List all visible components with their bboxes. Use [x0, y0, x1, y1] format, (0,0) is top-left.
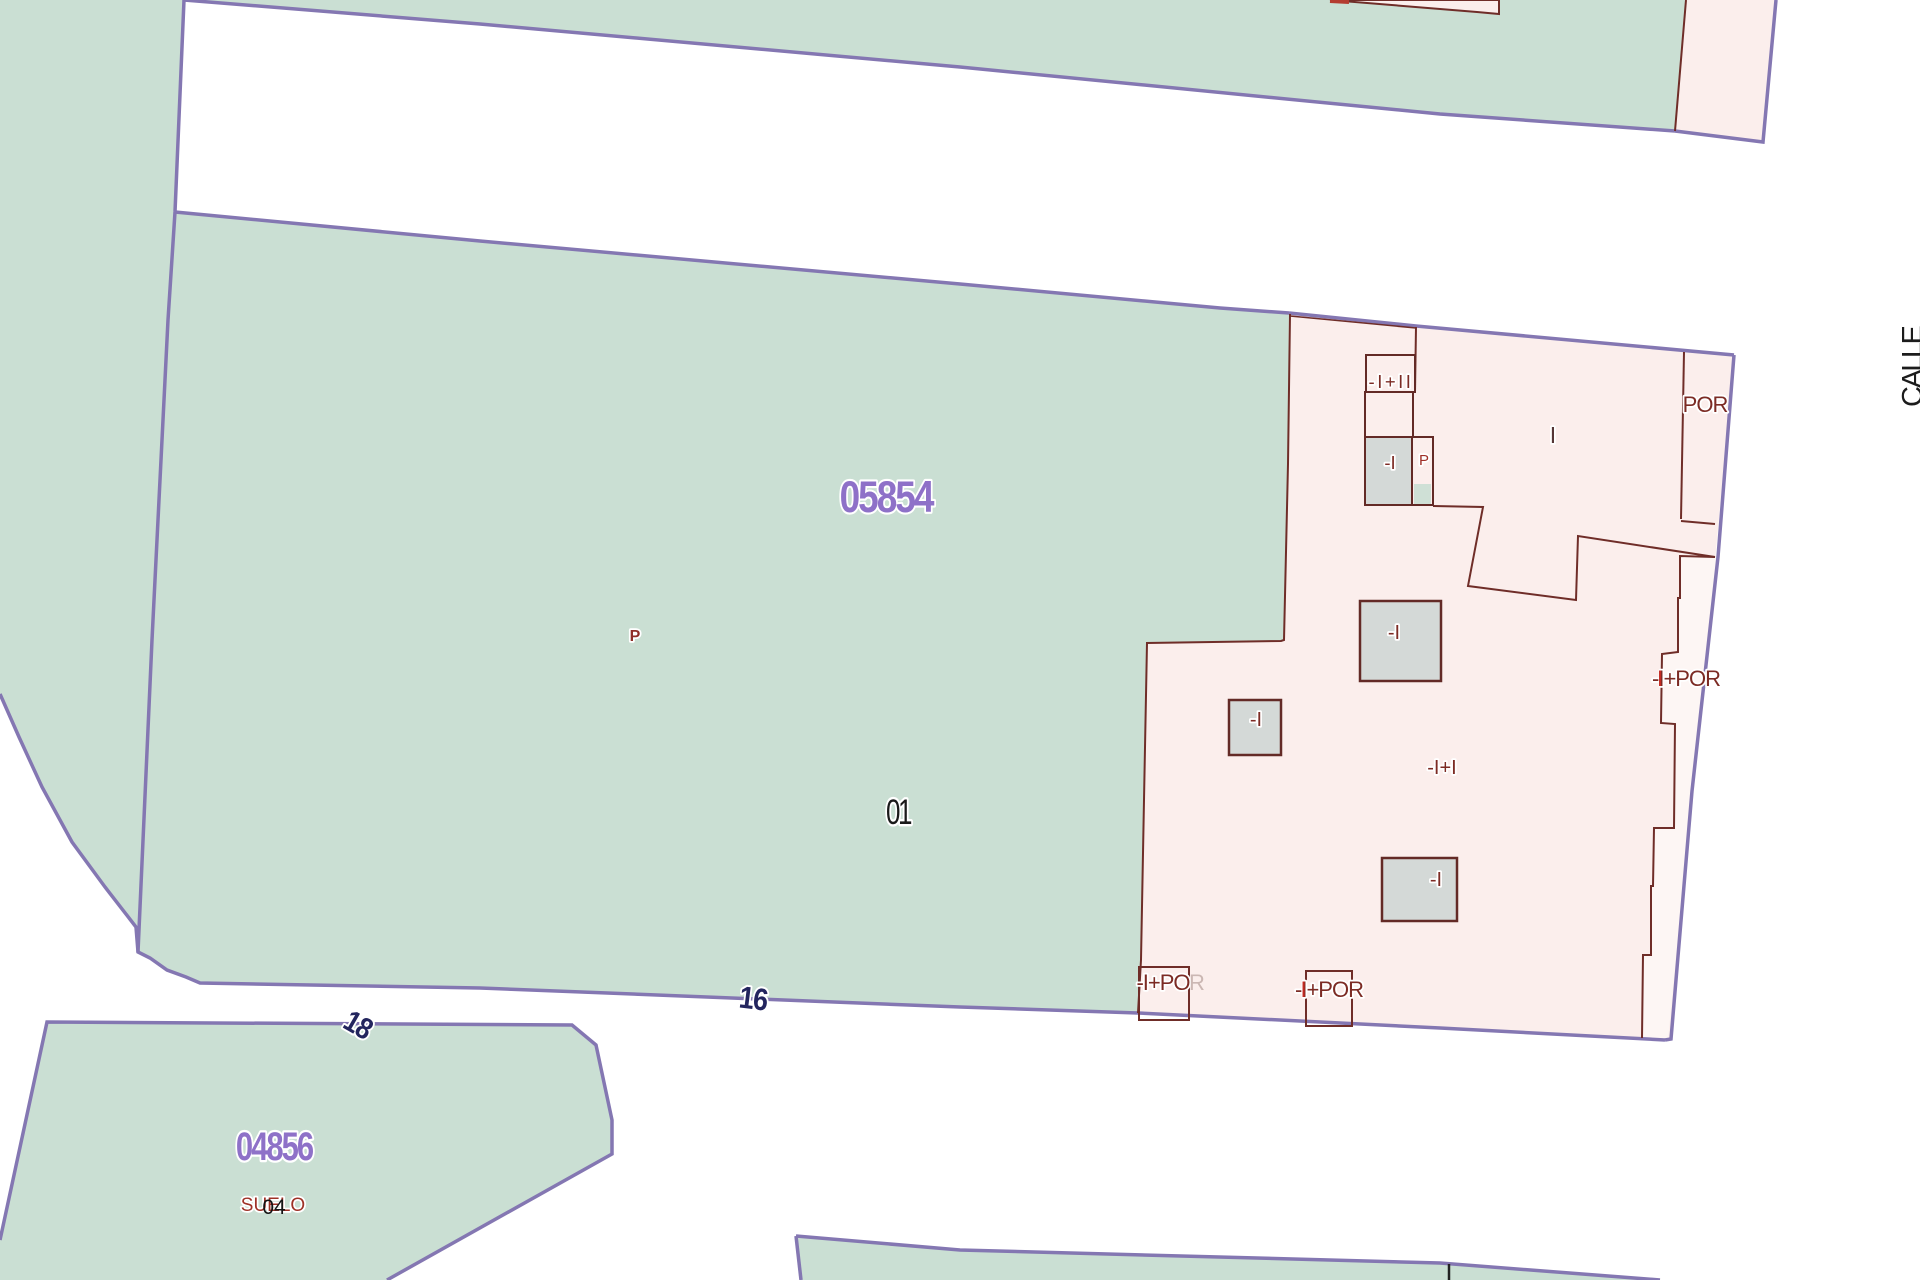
svg-text:05854: 05854 [840, 472, 935, 522]
svg-text:-I: -I [1250, 709, 1262, 731]
svg-text:01: 01 [886, 792, 911, 832]
svg-text:P: P [1419, 452, 1429, 469]
svg-text:I: I [1657, 666, 1663, 691]
svg-text:-I: -I [1430, 869, 1442, 891]
svg-text:I: I [1300, 977, 1306, 1002]
svg-text:I: I [1550, 422, 1556, 448]
svg-text:P: P [630, 628, 641, 645]
svg-text:16: 16 [737, 981, 770, 1018]
svg-text:-I+I: -I+I [1427, 757, 1456, 779]
svg-text:CALLE: CALLE [1897, 325, 1920, 407]
svg-text:-I+II: -I+II [1369, 371, 1414, 392]
svg-text:-I+PO: -I+PO [1136, 970, 1190, 995]
svg-text:04856: 04856 [236, 1123, 313, 1169]
svg-text:R: R [1189, 970, 1205, 995]
svg-text:POR: POR [1683, 392, 1728, 417]
svg-text:-I: -I [1384, 452, 1395, 473]
svg-text:04: 04 [262, 1196, 286, 1219]
svg-text:-I: -I [1388, 622, 1400, 644]
